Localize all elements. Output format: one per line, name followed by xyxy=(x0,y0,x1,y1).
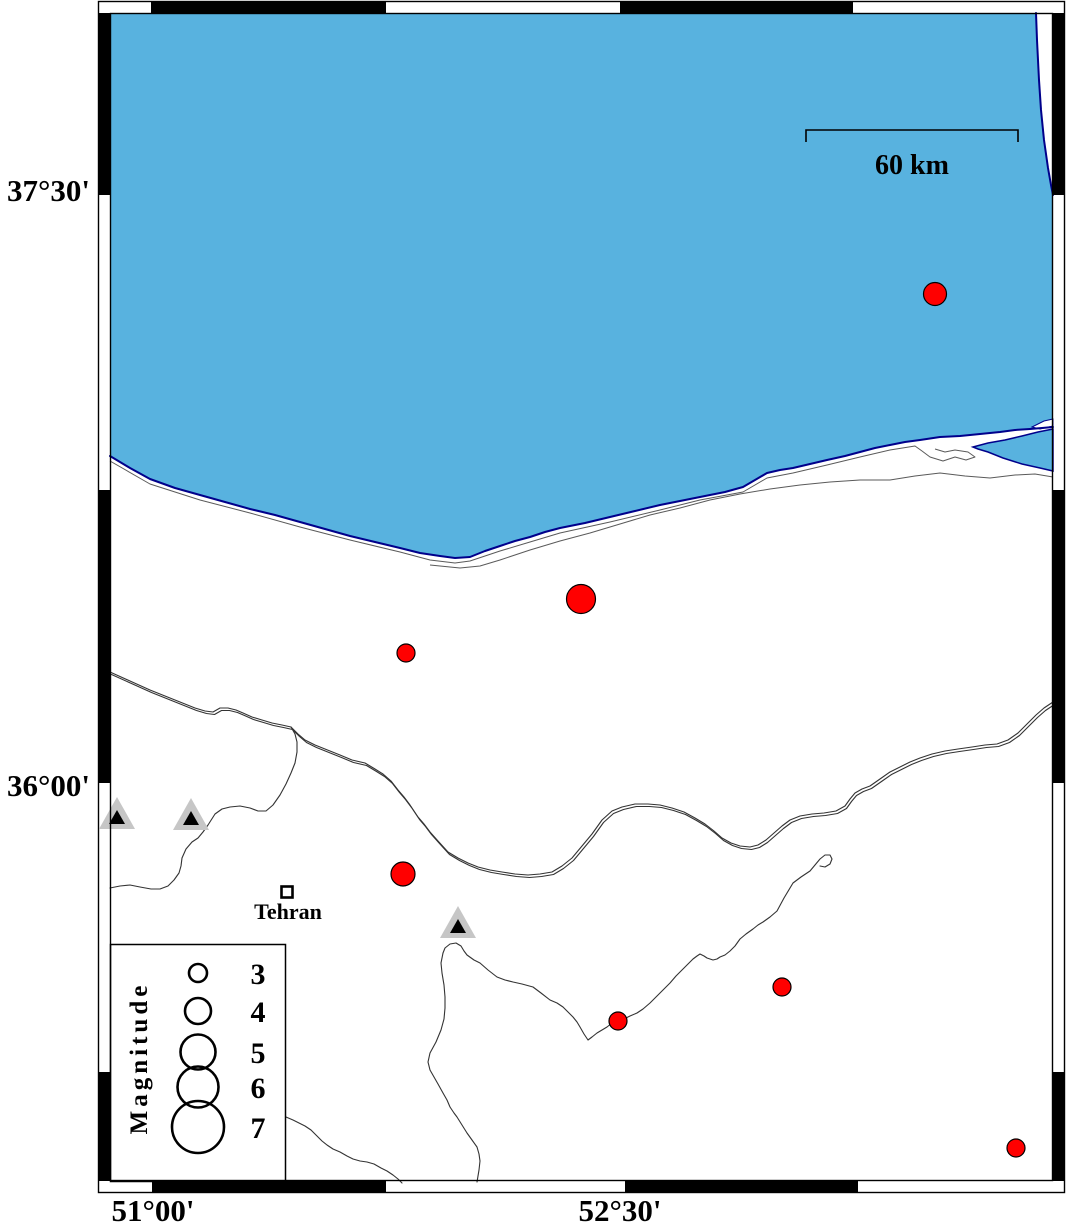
legend-magnitude-value: 4 xyxy=(251,996,266,1029)
earthquake-marker xyxy=(391,862,415,886)
legend-magnitude-value: 5 xyxy=(251,1037,266,1070)
legend-title: Magnitude xyxy=(126,982,153,1135)
legend-magnitude-value: 3 xyxy=(251,958,266,991)
earthquake-marker xyxy=(609,1012,627,1030)
earthquake-marker xyxy=(567,585,596,614)
lat-label-37-30: 37°30' xyxy=(7,173,90,208)
earthquake-marker xyxy=(397,644,415,662)
scale-bar-label: 60 km xyxy=(875,150,949,181)
lat-label-36-00: 36°00' xyxy=(7,768,90,803)
magnitude-legend: Magnitude 34567 xyxy=(111,945,286,1182)
earthquake-marker xyxy=(1007,1139,1025,1157)
lon-label-51-00: 51°00' xyxy=(111,1193,194,1228)
city-label: Tehran xyxy=(254,899,322,924)
city-square-marker xyxy=(282,887,293,898)
legend-magnitude-value: 7 xyxy=(251,1112,266,1145)
earthquake-marker xyxy=(773,978,791,996)
earthquake-marker xyxy=(924,283,947,306)
legend-magnitude-value: 6 xyxy=(251,1072,266,1105)
lon-label-52-30: 52°30' xyxy=(578,1193,661,1228)
map-figure: 60 km Tehran Magnitude 34567 37°30' 36°0… xyxy=(0,0,1066,1229)
map-canvas: 60 km Tehran Magnitude 34567 37°30' 36°0… xyxy=(0,0,1066,1229)
